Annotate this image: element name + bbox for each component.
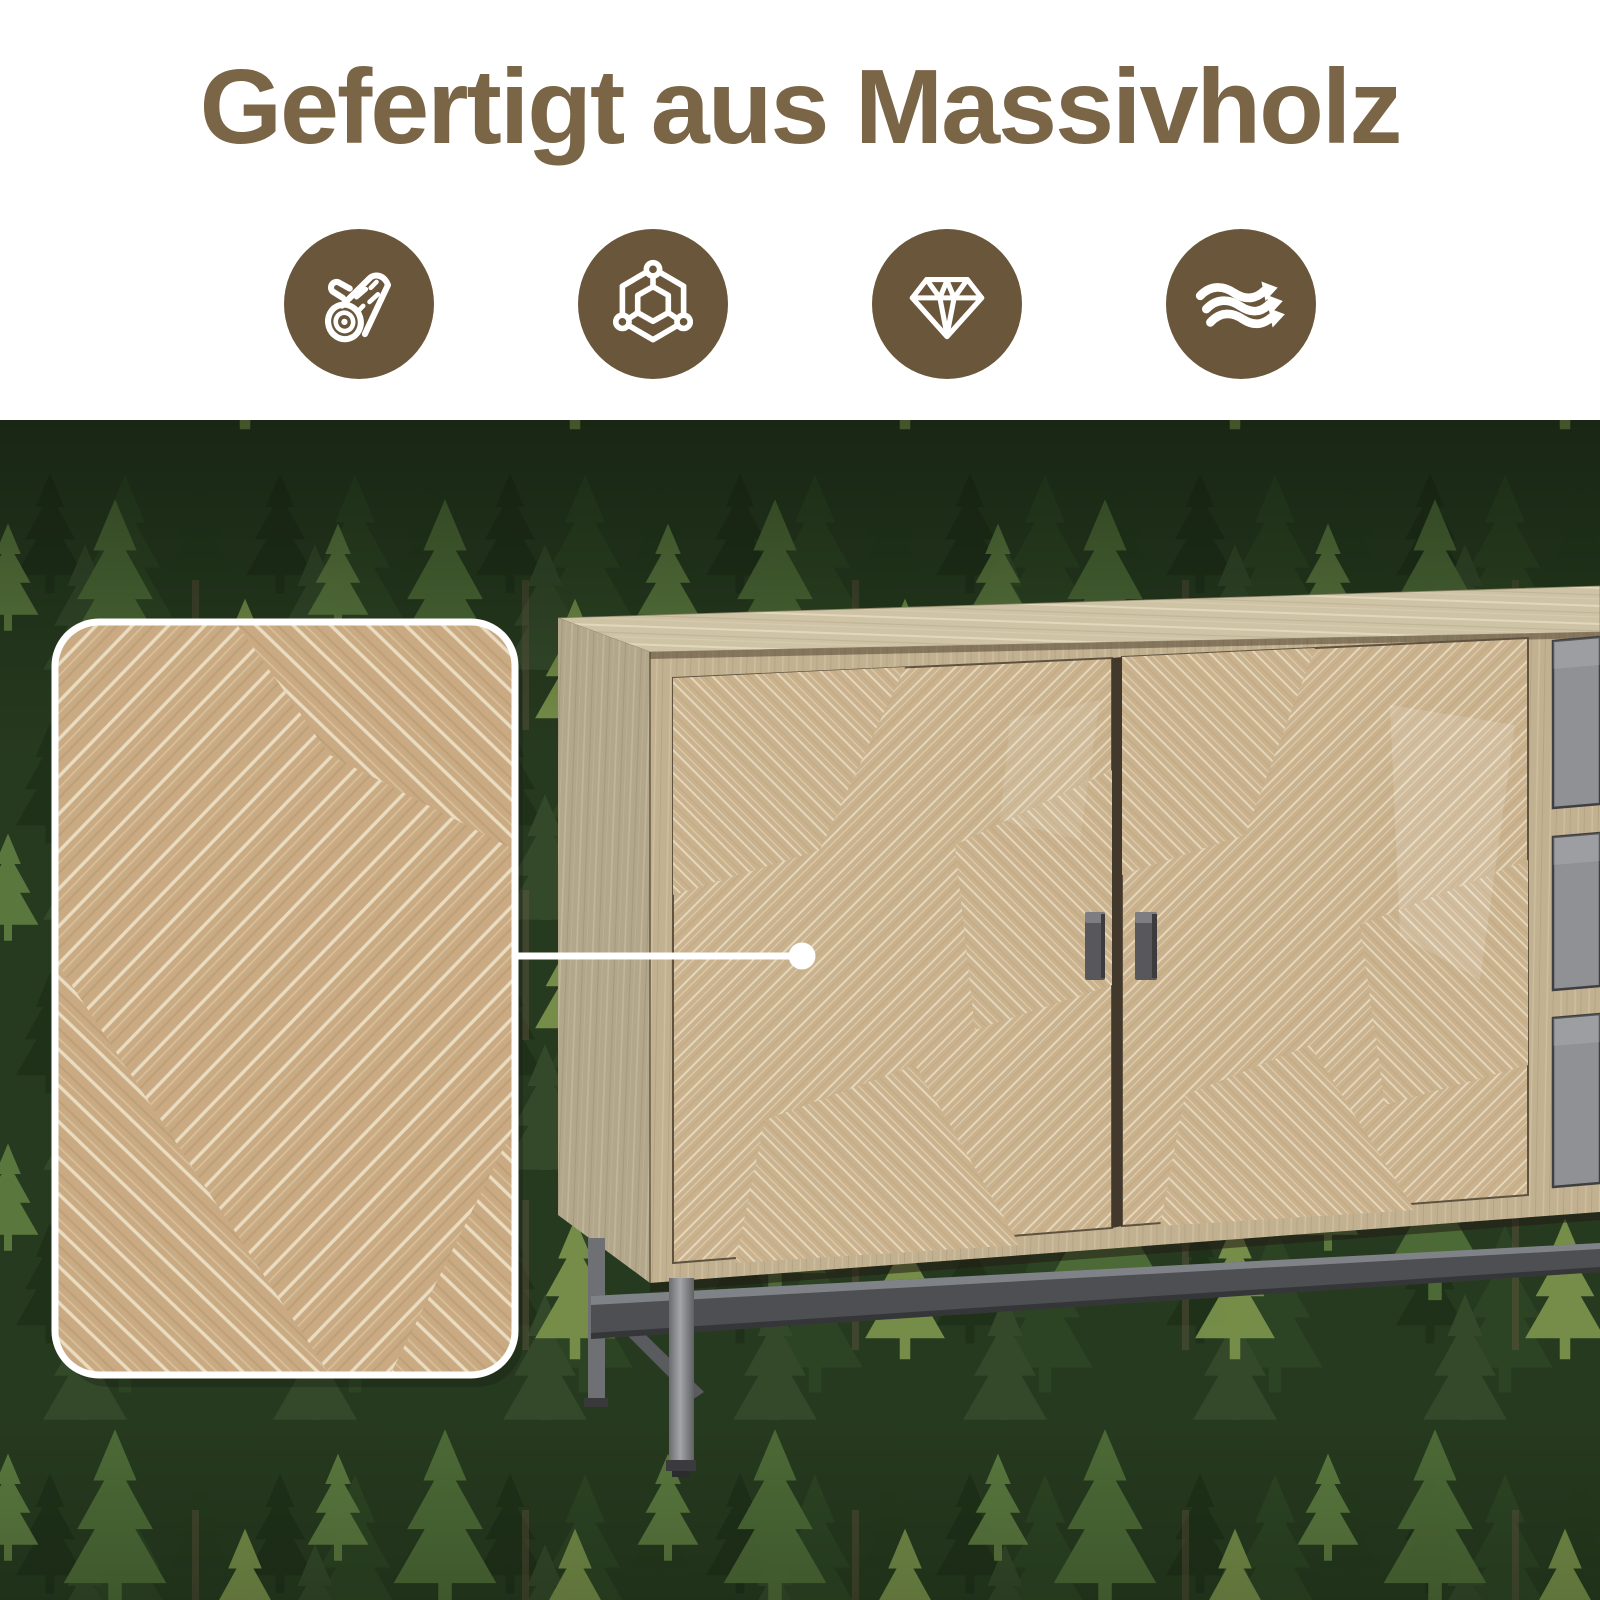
drawer-column (1553, 637, 1600, 1187)
diamond-icon (872, 229, 1022, 379)
diamond-icon-glyph (896, 253, 998, 355)
page-title: Gefertigt aus Massivholz (0, 0, 1600, 163)
product-scene (0, 420, 1600, 1600)
log-icon (284, 229, 434, 379)
sideboard-cabinet (558, 586, 1600, 1292)
wood-structure-icon-glyph (602, 253, 704, 355)
airflow-icon-glyph (1190, 253, 1292, 355)
log-icon-glyph (308, 253, 410, 355)
cabinet-door-right (1122, 638, 1528, 1226)
cabinet-left-side (558, 618, 650, 1283)
detail-inset (55, 622, 523, 1387)
wood-structure-icon (578, 229, 728, 379)
cabinet-door-left (673, 658, 1112, 1263)
product-infographic: Gefertigt aus Massivholz (0, 0, 1600, 1600)
header-section: Gefertigt aus Massivholz (0, 0, 1600, 420)
feature-icons-row (0, 229, 1600, 379)
airflow-icon (1166, 229, 1316, 379)
door-gap (1112, 657, 1122, 1228)
product-photo-section (0, 420, 1600, 1600)
callout-dot (789, 943, 816, 970)
front-left-leg (669, 1278, 694, 1462)
